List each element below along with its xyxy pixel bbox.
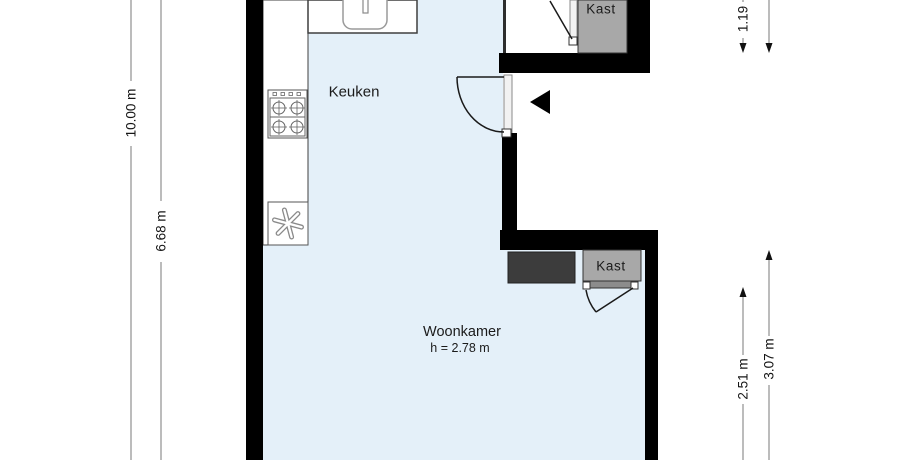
dimension-label-right-top: 1.19 <box>736 6 750 32</box>
closet-label-bottom: Kast <box>596 259 625 273</box>
stove-icon <box>268 90 307 138</box>
dimension-label-right-outer: 3.07 m <box>762 338 776 379</box>
room-height-woonkamer: h = 2.78 m <box>430 342 489 355</box>
sink-icon <box>343 0 387 29</box>
room-label-keuken: Keuken <box>329 85 380 100</box>
wall-right <box>645 250 658 460</box>
floor-plan-canvas <box>0 0 905 460</box>
ventilation-fan-icon <box>268 202 308 245</box>
room-label-woonkamer: Woonkamer <box>423 325 501 340</box>
wall-top-horizontal <box>499 53 650 73</box>
floor-plan: Keuken Woonkamer h = 2.78 m Kast Kast 10… <box>0 0 905 460</box>
dimension-arrowheads <box>740 43 773 297</box>
closet-bottom-door-bar <box>589 281 631 288</box>
hinge-marker-closet-bottom-left <box>583 282 590 289</box>
entrance-door-threshold <box>504 75 512 133</box>
closet-label-top: Kast <box>586 2 615 16</box>
dimension-label-left-outer: 10.00 m <box>124 89 138 138</box>
closet-top-door-leaf <box>550 1 572 39</box>
dimension-label-left-inner: 6.68 m <box>154 210 168 251</box>
hinge-marker-entrance <box>502 129 511 137</box>
wall-mid-vertical <box>502 133 517 233</box>
wall-left <box>246 0 263 460</box>
hinge-marker-closet-top <box>569 37 577 45</box>
closet-top-door-threshold <box>570 0 577 38</box>
closet-dark <box>508 252 575 283</box>
wall-mid-horizontal <box>500 230 658 250</box>
partition-wall-thin <box>503 0 506 55</box>
entrance-arrow-icon <box>530 90 550 114</box>
dimension-label-right-inner: 2.51 m <box>736 358 750 399</box>
wall-top-right-column <box>627 0 650 54</box>
